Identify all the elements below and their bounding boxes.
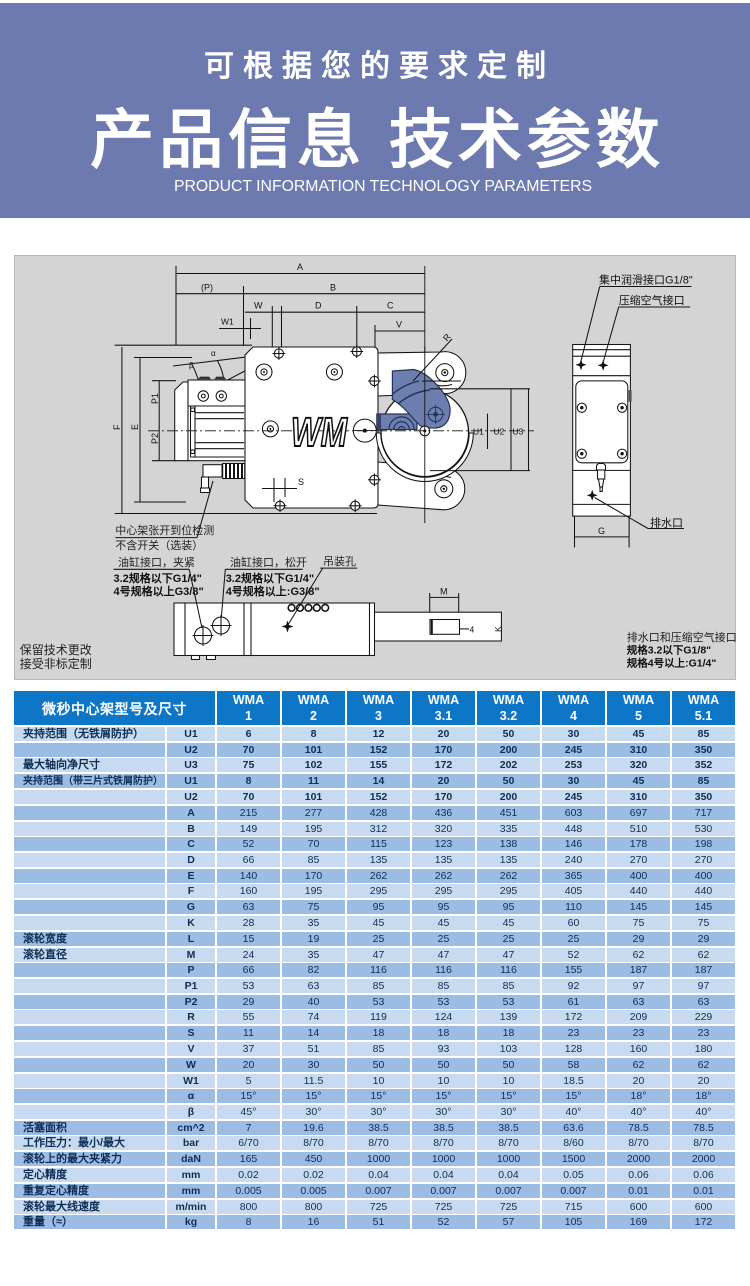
svg-text:不含开关（选装）: 不含开关（选装） [115, 538, 203, 552]
svg-text:D: D [315, 301, 322, 311]
svg-text:G: G [598, 526, 605, 536]
svg-text:C: C [387, 301, 394, 311]
svg-text:(P): (P) [201, 283, 213, 293]
svg-text:α: α [211, 349, 216, 358]
svg-text:WM: WM [291, 409, 348, 455]
svg-text:3.2规格以下G1/4": 3.2规格以下G1/4" [114, 571, 202, 585]
svg-text:规格4号以上:G1/4": 规格4号以上:G1/4" [627, 657, 717, 670]
svg-text:4号规格以上:G3/8": 4号规格以上:G3/8" [226, 584, 320, 598]
svg-text:压缩空气接口: 压缩空气接口 [619, 293, 685, 307]
svg-text:油缸接口，松开: 油缸接口，松开 [230, 555, 307, 569]
svg-text:P2: P2 [150, 433, 160, 444]
svg-text:保留技术更改: 保留技术更改 [20, 643, 92, 657]
svg-text:W: W [254, 301, 263, 311]
svg-text:规格3.2以下G1/8": 规格3.2以下G1/8" [627, 644, 711, 657]
svg-text:集中润滑接口G1/8": 集中润滑接口G1/8" [599, 273, 693, 287]
svg-text:P1: P1 [150, 393, 160, 404]
svg-text:4: 4 [470, 625, 475, 635]
svg-text:β: β [189, 361, 194, 370]
svg-text:U3: U3 [513, 427, 524, 437]
svg-text:F: F [112, 424, 122, 430]
svg-text:E: E [130, 424, 140, 430]
svg-text:U2: U2 [494, 427, 505, 437]
svg-text:3.2规格以下G1/4": 3.2规格以下G1/4" [226, 571, 314, 585]
svg-text:K: K [493, 626, 503, 632]
svg-text:B: B [330, 283, 336, 293]
svg-text:V: V [396, 320, 402, 330]
svg-text:S: S [298, 477, 304, 487]
svg-text:4号规格以上G3/8": 4号规格以上G3/8" [114, 584, 204, 598]
svg-text:排水口: 排水口 [650, 516, 683, 530]
svg-text:R: R [441, 331, 453, 343]
svg-text:接受非标定制: 接受非标定制 [20, 656, 92, 671]
svg-text:吊装孔: 吊装孔 [323, 555, 356, 568]
svg-text:A: A [297, 262, 303, 272]
svg-text:U1: U1 [473, 427, 484, 437]
svg-text:排水口和压缩空气接口: 排水口和压缩空气接口 [627, 630, 736, 644]
svg-text:M: M [440, 587, 448, 597]
svg-text:油缸接口，夹紧: 油缸接口，夹紧 [118, 555, 195, 569]
svg-text:W1: W1 [221, 317, 234, 327]
